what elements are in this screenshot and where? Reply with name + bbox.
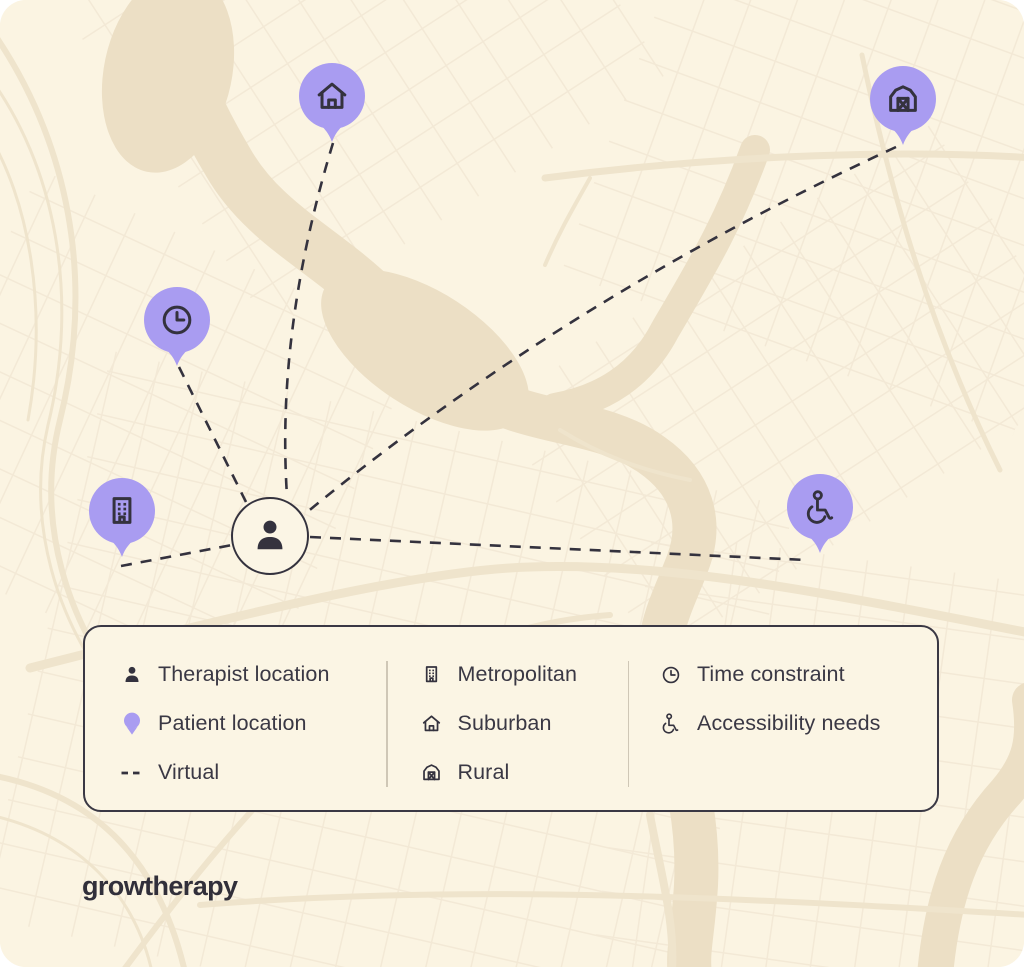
barn-icon [418, 759, 445, 786]
legend-column-3: Time constraint Accessibility needs [629, 650, 937, 810]
legend-item-rural: Rural [418, 748, 628, 797]
legend-label: Time constraint [697, 662, 845, 687]
map-illustration: Therapist location Patient location V [0, 0, 1024, 967]
legend-item-patient-location: Patient location [118, 699, 386, 748]
legend-label: Metropolitan [458, 662, 578, 687]
legend-label: Therapist location [158, 662, 330, 687]
legend-item-therapist-location: Therapist location [118, 650, 386, 699]
house-icon [418, 710, 445, 737]
legend-item-virtual: Virtual [118, 748, 386, 797]
clock-icon [657, 661, 684, 688]
patient-pin-time-constraint [141, 286, 213, 368]
person-icon [118, 661, 145, 688]
patient-pin-accessibility [784, 473, 856, 555]
house-icon [313, 77, 351, 115]
person-icon [249, 515, 291, 557]
map-pin-icon [118, 710, 145, 737]
legend-item-time-constraint: Time constraint [657, 650, 937, 699]
therapist-location-node [231, 497, 309, 575]
legend-panel: Therapist location Patient location V [83, 625, 939, 812]
legend-label: Patient location [158, 711, 307, 736]
patient-pin-metropolitan [86, 477, 158, 559]
legend-item-metropolitan: Metropolitan [418, 650, 628, 699]
legend-item-accessibility-needs: Accessibility needs [657, 699, 937, 748]
wheelchair-icon [801, 488, 839, 526]
wheelchair-icon [657, 710, 684, 737]
legend-label: Rural [458, 760, 510, 785]
building-icon [418, 661, 445, 688]
dashed-line-icon [118, 759, 145, 786]
legend-label: Accessibility needs [697, 711, 881, 736]
legend-label: Virtual [158, 760, 219, 785]
patient-pin-rural [867, 65, 939, 147]
legend-label: Suburban [458, 711, 552, 736]
clock-icon [158, 301, 196, 339]
building-icon [103, 492, 141, 530]
barn-icon [884, 80, 922, 118]
legend-column-2: Metropolitan Suburban [388, 650, 628, 810]
legend-column-1: Therapist location Patient location V [85, 650, 386, 810]
growtherapy-logo: growtherapy [82, 871, 237, 902]
patient-pin-suburban [296, 62, 368, 144]
legend-item-suburban: Suburban [418, 699, 628, 748]
